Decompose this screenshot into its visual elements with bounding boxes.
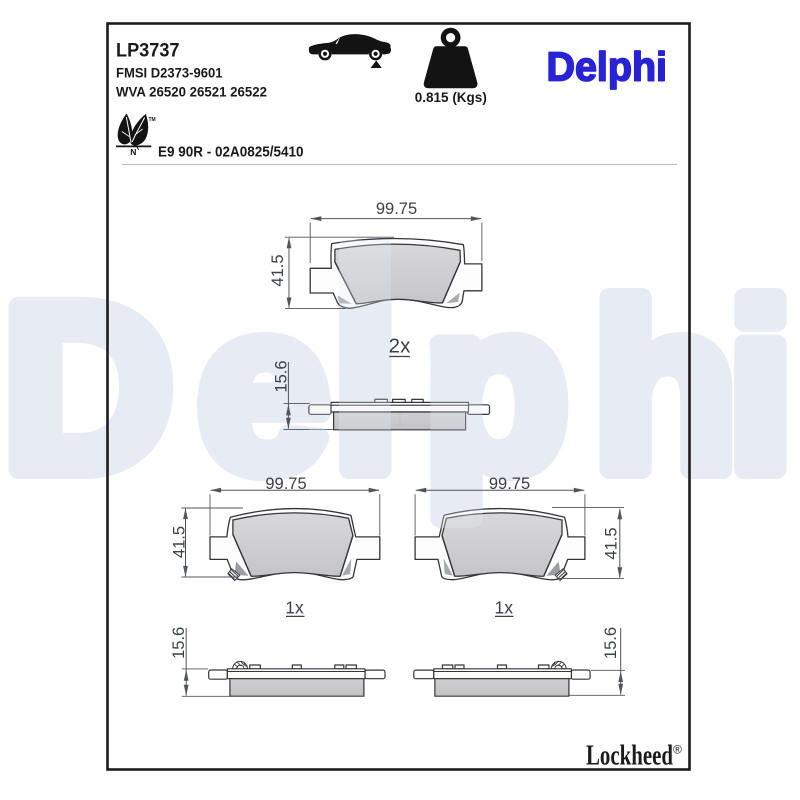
svg-text:LP3737: LP3737 <box>116 40 180 62</box>
svg-text:FMSI D2373-9601: FMSI D2373-9601 <box>116 65 223 81</box>
svg-text:e: e <box>198 256 329 520</box>
svg-text:15.6: 15.6 <box>170 627 188 659</box>
svg-text:TM: TM <box>149 117 156 123</box>
svg-text:41.5: 41.5 <box>269 254 287 286</box>
svg-text:99.75: 99.75 <box>265 475 306 493</box>
svg-text:2x: 2x <box>389 335 411 358</box>
svg-text:41.5: 41.5 <box>602 527 620 559</box>
svg-text:E9 90R - 02A0825/5410: E9 90R - 02A0825/5410 <box>158 144 304 161</box>
svg-text:99.75: 99.75 <box>489 475 530 493</box>
svg-text:1x: 1x <box>285 597 304 617</box>
svg-text:i: i <box>728 256 794 520</box>
svg-text:41.5: 41.5 <box>170 526 188 558</box>
svg-text:15.6: 15.6 <box>272 360 290 392</box>
svg-text:99.75: 99.75 <box>376 200 417 218</box>
svg-text:®: ® <box>673 743 682 757</box>
svg-text:h: h <box>593 256 737 520</box>
svg-text:1x: 1x <box>495 597 514 617</box>
svg-text:Lockheed: Lockheed <box>586 741 673 772</box>
svg-text:0.815 (Kgs): 0.815 (Kgs) <box>415 90 487 105</box>
svg-text:D: D <box>3 256 173 520</box>
svg-text:15.6: 15.6 <box>602 627 620 659</box>
svg-text:WVA 26520 26521 26522: WVA 26520 26521 26522 <box>116 85 267 101</box>
svg-text:Delphi: Delphi <box>547 44 668 90</box>
svg-text:N: N <box>130 147 136 157</box>
